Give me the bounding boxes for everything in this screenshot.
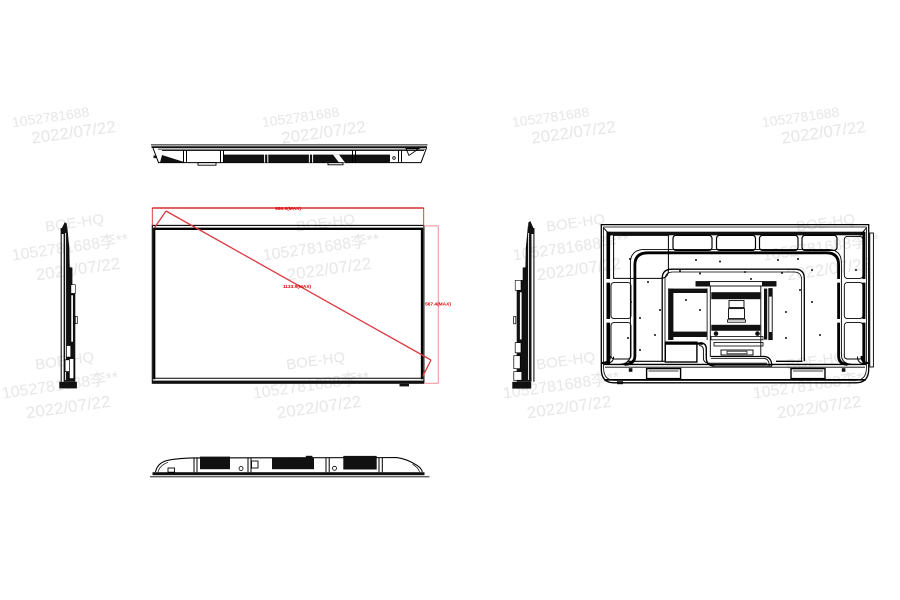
- svg-text:567.4(MAX): 567.4(MAX): [425, 302, 451, 308]
- svg-text:986.9(MAX): 986.9(MAX): [275, 206, 301, 212]
- svg-text:1133.9(MAX): 1133.9(MAX): [283, 284, 312, 290]
